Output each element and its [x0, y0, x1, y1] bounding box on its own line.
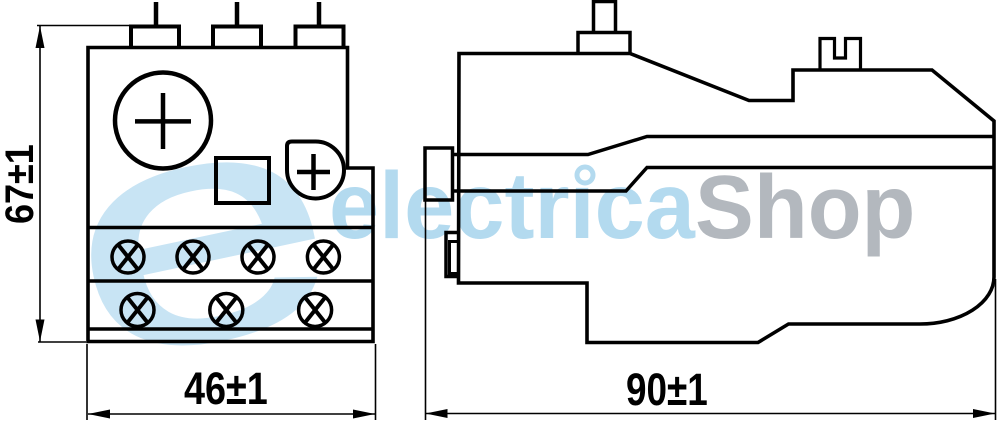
svg-text:Shop: Shop — [695, 156, 915, 257]
svg-text:electrıca: electrıca — [329, 152, 696, 259]
svg-text:90±1: 90±1 — [626, 365, 708, 415]
svg-text:46±1: 46±1 — [184, 363, 268, 414]
svg-text:67±1: 67±1 — [0, 144, 42, 224]
